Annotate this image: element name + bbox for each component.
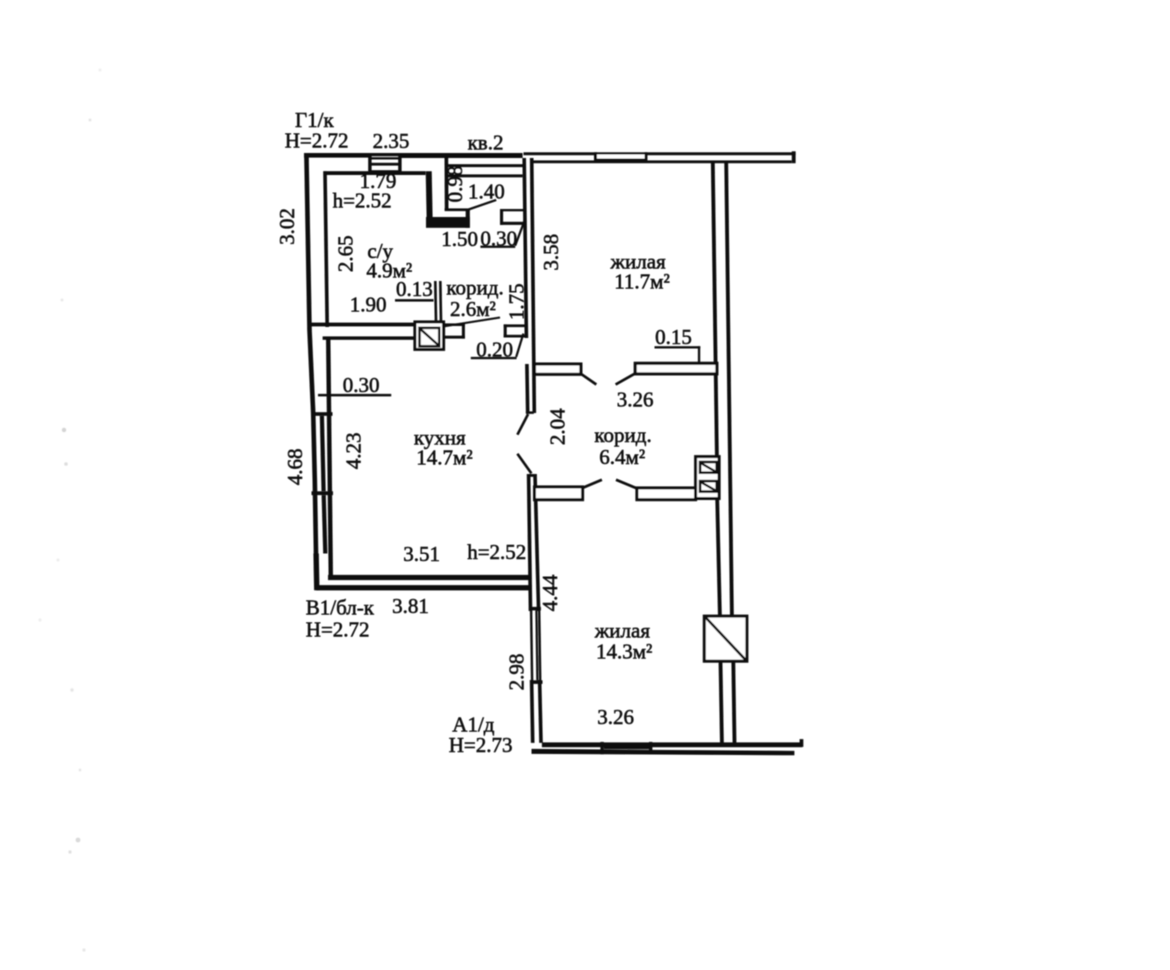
svg-text:4.68: 4.68 bbox=[283, 449, 307, 486]
svg-text:2.04: 2.04 bbox=[545, 408, 569, 445]
svg-text:кв.2: кв.2 bbox=[468, 130, 504, 154]
svg-text:h=2.52: h=2.52 bbox=[333, 189, 392, 213]
svg-text:3.26: 3.26 bbox=[617, 387, 654, 411]
svg-text:11.7м²: 11.7м² bbox=[614, 269, 670, 293]
svg-text:6.4м²: 6.4м² bbox=[599, 445, 645, 469]
svg-text:Н=2.73: Н=2.73 bbox=[449, 733, 513, 757]
svg-text:корид.: корид. bbox=[594, 423, 651, 447]
svg-text:4.23: 4.23 bbox=[341, 433, 365, 470]
svg-text:2.98: 2.98 bbox=[505, 654, 529, 691]
svg-text:1.50: 1.50 bbox=[441, 227, 478, 251]
svg-text:1.90: 1.90 bbox=[350, 293, 387, 317]
svg-text:3.26: 3.26 bbox=[597, 705, 634, 729]
svg-text:3.81: 3.81 bbox=[392, 594, 429, 618]
svg-text:0.13: 0.13 bbox=[396, 277, 433, 301]
svg-text:1.40: 1.40 bbox=[468, 180, 505, 204]
svg-text:корид.: корид. bbox=[446, 276, 503, 300]
svg-text:0.20: 0.20 bbox=[476, 337, 513, 361]
svg-text:Н=2.72: Н=2.72 bbox=[306, 618, 370, 642]
svg-text:2.35: 2.35 bbox=[373, 129, 410, 153]
svg-text:3.51: 3.51 bbox=[403, 542, 440, 566]
svg-text:1.75: 1.75 bbox=[504, 283, 528, 320]
svg-text:0.30: 0.30 bbox=[480, 226, 517, 250]
svg-text:h=2.52: h=2.52 bbox=[467, 540, 526, 564]
svg-text:2.65: 2.65 bbox=[333, 235, 357, 272]
svg-text:Н=2.72: Н=2.72 bbox=[285, 129, 349, 153]
svg-text:0.15: 0.15 bbox=[655, 325, 692, 349]
svg-text:В1/бл-к: В1/бл-к bbox=[306, 596, 375, 620]
svg-text:0.30: 0.30 bbox=[343, 373, 380, 397]
svg-text:14.3м²: 14.3м² bbox=[596, 639, 652, 663]
svg-text:0.98: 0.98 bbox=[443, 166, 467, 203]
svg-text:3.02: 3.02 bbox=[275, 208, 299, 245]
svg-text:2.6м²: 2.6м² bbox=[450, 297, 496, 321]
svg-text:14.7м²: 14.7м² bbox=[416, 446, 472, 470]
svg-text:4.44: 4.44 bbox=[538, 574, 562, 611]
svg-text:3.58: 3.58 bbox=[539, 234, 563, 271]
